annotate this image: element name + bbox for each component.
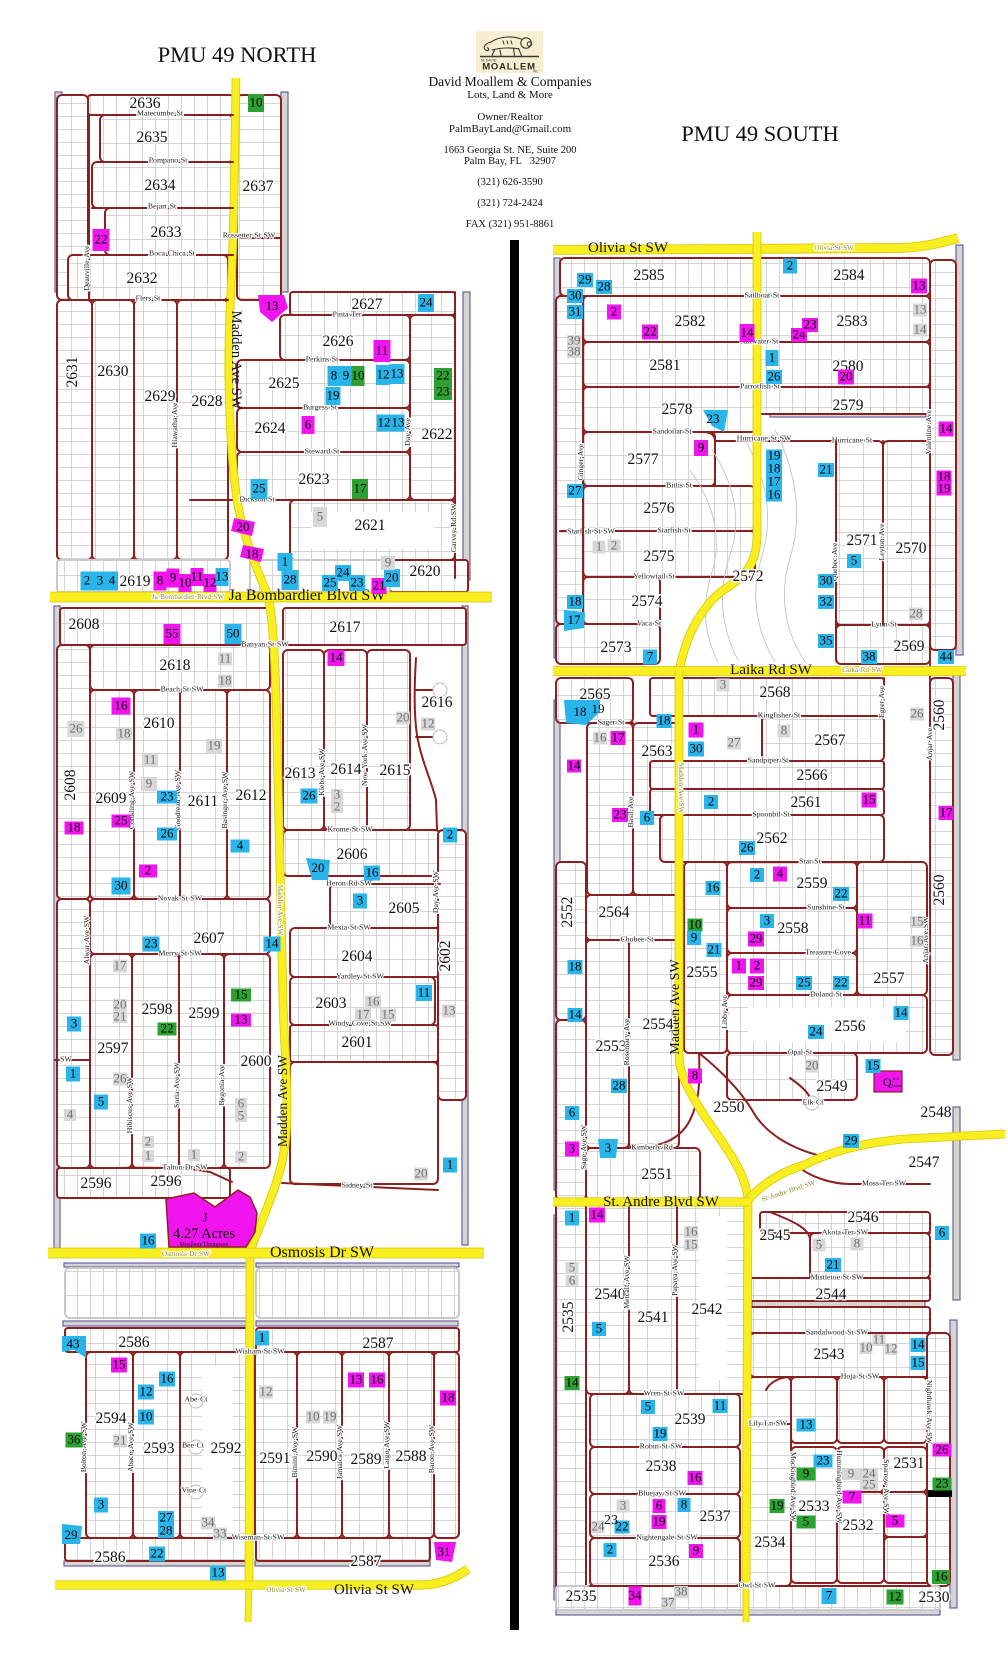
svg-text:26: 26 — [768, 369, 782, 384]
svg-text:5: 5 — [238, 1108, 245, 1123]
svg-text:11: 11 — [144, 752, 157, 767]
svg-text:2537: 2537 — [700, 1508, 731, 1525]
svg-text:29: 29 — [579, 272, 592, 287]
svg-text:Pompano·St: Pompano·St — [149, 156, 188, 165]
svg-text:25: 25 — [798, 975, 811, 990]
svg-text:2531: 2531 — [894, 1455, 925, 1472]
svg-text:2: 2 — [145, 863, 152, 878]
svg-text:4.27 Acres: 4.27 Acres — [173, 1226, 235, 1242]
svg-text:9: 9 — [170, 570, 177, 585]
svg-text:Lynn·St: Lynn·St — [871, 620, 897, 629]
svg-text:Klebs·Ave·SW: Klebs·Ave·SW — [317, 748, 326, 796]
svg-text:2538: 2538 — [646, 1458, 677, 1475]
svg-text:Palm Bay, FL 32907: Palm Bay, FL 32907 — [464, 156, 556, 167]
svg-text:3: 3 — [605, 1140, 612, 1155]
svg-text:11: 11 — [714, 1398, 727, 1413]
svg-text:PMU 49 NORTH: PMU 49 NORTH — [158, 42, 317, 67]
svg-text:Jamaica·Ave·SW: Jamaica·Ave·SW — [335, 1424, 344, 1479]
svg-text:13: 13 — [391, 366, 404, 381]
svg-text:Valentine·Ave: Valentine·Ave — [924, 409, 933, 454]
svg-text:9: 9 — [693, 1543, 700, 1558]
svg-text:Novak·St·SW: Novak·St·SW — [158, 894, 203, 903]
svg-text:27: 27 — [569, 483, 583, 498]
svg-text:8: 8 — [331, 368, 338, 383]
svg-text:10: 10 — [307, 1409, 320, 1424]
svg-text:2559: 2559 — [797, 875, 828, 892]
svg-text:Moss·Ter·SW: Moss·Ter·SW — [862, 1179, 907, 1188]
svg-text:2626: 2626 — [323, 333, 354, 350]
svg-text:1: 1 — [145, 1148, 152, 1163]
svg-text:20: 20 — [386, 570, 399, 585]
svg-text:15: 15 — [867, 1058, 880, 1073]
svg-text:Anjar·Ave: Anjar·Ave — [925, 727, 934, 760]
svg-text:2625: 2625 — [269, 375, 300, 392]
svg-text:10: 10 — [860, 1340, 873, 1355]
svg-text:44: 44 — [940, 649, 954, 664]
svg-text:Wiseman·St·SW: Wiseman·St·SW — [232, 1533, 285, 1542]
svg-text:14: 14 — [895, 1005, 909, 1020]
svg-text:2575: 2575 — [644, 548, 675, 565]
svg-text:13: 13 — [800, 1417, 813, 1432]
svg-text:Sparrow·Ave·SW: Sparrow·Ave·SW — [882, 1459, 891, 1515]
svg-text:Mexia·St·SW: Mexia·St·SW — [327, 923, 371, 932]
svg-text:3: 3 — [357, 893, 364, 908]
svg-text:8: 8 — [692, 1068, 699, 1083]
svg-text:14: 14 — [566, 1375, 580, 1390]
svg-text:Bitlis·St: Bitlis·St — [666, 481, 693, 490]
svg-text:2631: 2631 — [64, 357, 81, 388]
svg-text:Madden·Ave·SW: Madden·Ave·SW — [677, 763, 685, 814]
svg-text:27: 27 — [728, 735, 742, 750]
svg-text:20: 20 — [397, 710, 410, 725]
svg-text:18: 18 — [442, 1390, 455, 1405]
svg-text:6: 6 — [569, 1273, 576, 1288]
svg-text:23: 23 — [936, 1476, 949, 1491]
svg-text:13: 13 — [235, 1012, 248, 1027]
svg-text:23: 23 — [351, 575, 364, 590]
svg-text:23: 23 — [437, 384, 450, 399]
svg-text:Hummingbird·Ave·SW: Hummingbird·Ave·SW — [835, 1450, 844, 1524]
svg-text:Flers·St: Flers·St — [136, 294, 162, 303]
svg-text:2590: 2590 — [307, 1448, 338, 1465]
svg-text:2608: 2608 — [69, 616, 100, 633]
svg-text:Sager·St: Sager·St — [598, 718, 626, 727]
svg-text:Laika·Rd·SW: Laika·Rd·SW — [842, 666, 883, 674]
svg-text:23: 23 — [817, 1453, 830, 1468]
svg-text:Matecumbe·St: Matecumbe·St — [137, 109, 184, 118]
svg-text:14: 14 — [330, 650, 344, 665]
svg-text:30: 30 — [690, 741, 703, 756]
svg-text:2: 2 — [334, 799, 341, 814]
svg-text:2589: 2589 — [351, 1451, 382, 1468]
svg-text:25: 25 — [863, 1477, 876, 1492]
svg-text:24: 24 — [420, 295, 434, 310]
svg-text:2624: 2624 — [255, 420, 286, 437]
svg-text:New·York·Ave·SW: New·York·Ave·SW — [360, 723, 369, 786]
svg-text:2582: 2582 — [675, 313, 706, 330]
svg-text:12: 12 — [422, 716, 435, 731]
svg-text:9: 9 — [698, 440, 705, 455]
svg-text:28: 28 — [598, 279, 611, 294]
svg-text:11: 11 — [859, 913, 872, 928]
svg-text:1: 1 — [447, 1157, 454, 1172]
svg-text:Rossetter·St·SW: Rossetter·St·SW — [223, 231, 276, 240]
svg-text:Starfish·St·SW: Starfish·St·SW — [567, 527, 615, 536]
svg-text:2542: 2542 — [692, 1301, 723, 1318]
svg-text:2581: 2581 — [650, 357, 681, 374]
svg-text:24: 24 — [810, 1024, 824, 1039]
svg-text:2577: 2577 — [628, 451, 659, 468]
svg-text:13: 13 — [443, 1003, 456, 1018]
svg-text:11: 11 — [418, 985, 431, 1000]
svg-text:2554: 2554 — [643, 1016, 674, 1033]
svg-text:Nightengale·St·SW: Nightengale·St·SW — [636, 1533, 698, 1542]
svg-text:23: 23 — [161, 789, 174, 804]
svg-text:38: 38 — [863, 649, 876, 664]
svg-text:23: 23 — [614, 807, 627, 822]
svg-text:2629: 2629 — [145, 388, 176, 405]
svg-text:15: 15 — [912, 1355, 925, 1370]
svg-text:Ja·Bombardier·Blvd·SW: Ja·Bombardier·Blvd·SW — [152, 593, 224, 601]
svg-text:19: 19 — [653, 1514, 666, 1529]
svg-text:Akota·Ter·SW: Akota·Ter·SW — [822, 1228, 869, 1237]
svg-text:SW: SW — [60, 1055, 72, 1064]
svg-text:Hoja·St·SW: Hoja·St·SW — [841, 1372, 880, 1381]
svg-text:9: 9 — [691, 930, 698, 945]
svg-text:9: 9 — [343, 368, 350, 383]
svg-text:1: 1 — [736, 958, 743, 973]
svg-text:2588: 2588 — [396, 1448, 427, 1465]
svg-text:10: 10 — [352, 368, 365, 383]
svg-text:22: 22 — [95, 232, 108, 247]
svg-text:30: 30 — [115, 878, 128, 893]
svg-text:5: 5 — [645, 1399, 652, 1414]
svg-text:16: 16 — [115, 698, 129, 713]
svg-text:15: 15 — [382, 1007, 395, 1022]
svg-text:2609: 2609 — [96, 790, 127, 807]
svg-text:David Moallem & Companies: David Moallem & Companies — [428, 74, 591, 89]
svg-text:(321) 724-2424: (321) 724-2424 — [477, 198, 543, 209]
svg-text:2600: 2600 — [241, 1053, 272, 1070]
svg-text:5: 5 — [98, 1094, 105, 1109]
svg-text:Sunshine·St: Sunshine·St — [807, 903, 846, 912]
svg-text:2635: 2635 — [137, 129, 168, 146]
svg-text:16: 16 — [935, 1569, 949, 1584]
svg-text:2539: 2539 — [675, 1411, 706, 1428]
svg-text:11: 11 — [873, 1332, 886, 1347]
svg-text:Basinger·Ave·SW: Basinger·Ave·SW — [220, 771, 229, 829]
svg-text:13: 13 — [216, 569, 229, 584]
svg-text:2585: 2585 — [634, 267, 665, 284]
svg-text:2611: 2611 — [188, 793, 218, 810]
svg-text:21: 21 — [820, 462, 833, 477]
svg-text:2591: 2591 — [260, 1450, 291, 1467]
svg-text:Spoonbil·St: Spoonbil·St — [752, 810, 790, 819]
svg-text:Deauville·Ave: Deauville·Ave — [82, 245, 91, 291]
svg-text:2608: 2608 — [62, 769, 79, 800]
svg-text:19: 19 — [938, 481, 951, 496]
svg-text:38: 38 — [568, 344, 581, 359]
svg-text:31: 31 — [569, 304, 582, 319]
svg-text:29: 29 — [750, 975, 763, 990]
svg-text:5: 5 — [851, 553, 858, 568]
svg-text:26: 26 — [303, 788, 317, 803]
svg-text:2532: 2532 — [843, 1517, 874, 1534]
svg-text:36: 36 — [68, 1432, 82, 1447]
svg-text:PalmBayLand@Gmail.com: PalmBayLand@Gmail.com — [449, 123, 572, 135]
svg-text:2586: 2586 — [95, 1549, 126, 1566]
svg-text:16: 16 — [371, 1372, 385, 1387]
svg-text:21: 21 — [708, 942, 721, 957]
svg-text:2637: 2637 — [243, 178, 274, 195]
svg-text:28: 28 — [613, 1078, 626, 1093]
svg-text:INC: INC — [533, 70, 539, 74]
svg-text:13: 13 — [212, 1565, 225, 1580]
svg-text:2534: 2534 — [755, 1534, 786, 1551]
svg-text:Banyan·St·SW: Banyan·St·SW — [241, 640, 289, 649]
svg-text:38: 38 — [675, 1584, 688, 1599]
svg-text:2586: 2586 — [119, 1334, 150, 1351]
svg-text:St. Andre Blvd SW: St. Andre Blvd SW — [603, 1194, 720, 1210]
svg-text:Osmosis Dr SW: Osmosis Dr SW — [270, 1244, 375, 1261]
svg-text:4: 4 — [109, 573, 116, 588]
svg-text:Alwar·Ave·SW: Alwar·Ave·SW — [82, 915, 91, 964]
svg-text:2561: 2561 — [791, 794, 822, 811]
svg-text:7: 7 — [647, 649, 654, 664]
svg-text:2596: 2596 — [81, 1175, 112, 1192]
svg-text:2568: 2568 — [760, 684, 791, 701]
svg-text:2599: 2599 — [189, 1005, 220, 1022]
svg-text:PMU 49 SOUTH: PMU 49 SOUTH — [681, 121, 839, 146]
svg-text:16: 16 — [142, 1233, 156, 1248]
svg-text:Olivia·St·SW: Olivia·St·SW — [266, 1586, 306, 1594]
svg-text:2592: 2592 — [211, 1440, 242, 1457]
svg-text:Starfish·St: Starfish·St — [657, 526, 691, 535]
svg-text:12: 12 — [260, 1384, 273, 1399]
svg-text:20: 20 — [806, 1058, 819, 1073]
svg-text:19: 19 — [654, 1426, 667, 1441]
svg-text:Lots, Land & More: Lots, Land & More — [467, 89, 553, 101]
svg-text:2563: 2563 — [642, 743, 673, 760]
svg-text:21: 21 — [373, 578, 386, 593]
svg-text:1663 Georgia St. NE, Suite 200: 1663 Georgia St. NE, Suite 200 — [443, 145, 576, 156]
svg-text:2576: 2576 — [644, 500, 675, 517]
svg-text:Rosemary·Ave: Rosemary·Ave — [622, 1018, 631, 1065]
svg-text:17: 17 — [940, 805, 954, 820]
svg-text:4.3: 4.3 — [893, 1076, 899, 1081]
svg-text:4: 4 — [777, 866, 784, 881]
svg-text:2541: 2541 — [638, 1309, 669, 1326]
svg-text:26: 26 — [741, 840, 755, 855]
svg-text:25: 25 — [324, 575, 337, 590]
svg-text:Nighthawk·Ave·SW: Nighthawk·Ave·SW — [925, 1380, 934, 1445]
svg-text:17: 17 — [357, 1007, 371, 1022]
svg-text:16: 16 — [911, 933, 925, 948]
svg-text:Yellowtail·St: Yellowtail·St — [633, 572, 675, 581]
svg-text:8: 8 — [781, 723, 788, 738]
svg-text:3: 3 — [71, 1016, 78, 1031]
svg-text:1: 1 — [282, 554, 289, 569]
svg-text:19: 19 — [324, 1409, 337, 1424]
svg-text:2530: 2530 — [919, 1589, 950, 1606]
svg-text:2560: 2560 — [931, 874, 948, 905]
svg-text:22: 22 — [437, 368, 450, 383]
svg-text:Wisham·St·SW: Wisham·St·SW — [235, 1347, 285, 1356]
svg-text:14: 14 — [912, 1337, 926, 1352]
svg-text:Garvey·Rd·SW: Garvey·Rd·SW — [449, 503, 458, 553]
svg-text:26: 26 — [70, 721, 84, 736]
svg-text:2536: 2536 — [649, 1553, 680, 1570]
svg-text:2564: 2564 — [599, 904, 630, 921]
svg-text:Doland·St: Doland·St — [810, 990, 843, 999]
svg-text:Ginger·Ave: Ginger·Ave — [576, 443, 585, 480]
svg-text:3: 3 — [620, 1498, 627, 1513]
svg-text:2535: 2535 — [560, 1301, 577, 1332]
svg-text:Madden Ave SW: Madden Ave SW — [668, 959, 683, 1055]
svg-text:2533: 2533 — [799, 1498, 830, 1515]
svg-text:2607: 2607 — [194, 930, 225, 947]
svg-text:26: 26 — [911, 706, 925, 721]
svg-text:Sailboat·St: Sailboat·St — [745, 291, 780, 300]
svg-text:1: 1 — [569, 1210, 576, 1225]
svg-text:18: 18 — [574, 704, 587, 719]
svg-text:14: 14 — [940, 421, 954, 436]
svg-text:2555: 2555 — [687, 964, 718, 981]
svg-text:Begonia·Ave: Begonia·Ave — [217, 1064, 226, 1106]
svg-text:MOALLEM: MOALLEM — [482, 62, 536, 73]
svg-text:18: 18 — [219, 673, 232, 688]
svg-text:2: 2 — [708, 794, 715, 809]
svg-text:Sandpiper·St: Sandpiper·St — [748, 756, 790, 765]
svg-text:2543: 2543 — [814, 1346, 845, 1363]
svg-text:25: 25 — [253, 481, 266, 496]
svg-text:Hurricane·St·SW: Hurricane·St·SW — [737, 434, 792, 443]
svg-text:3: 3 — [764, 913, 771, 928]
svg-text:34: 34 — [629, 1588, 643, 1603]
svg-text:2: 2 — [238, 1149, 245, 1164]
svg-text:19: 19 — [208, 738, 221, 753]
svg-text:2549: 2549 — [817, 1078, 848, 1095]
svg-text:22: 22 — [161, 1021, 174, 1036]
svg-text:10: 10 — [140, 1409, 153, 1424]
svg-text:2567: 2567 — [815, 732, 846, 749]
svg-text:13: 13 — [266, 298, 279, 313]
svg-text:21: 21 — [827, 1257, 840, 1272]
svg-text:11: 11 — [191, 569, 204, 584]
svg-text:16: 16 — [594, 730, 608, 745]
svg-text:2551: 2551 — [642, 1166, 673, 1183]
svg-text:17: 17 — [612, 730, 626, 745]
svg-text:32: 32 — [820, 594, 833, 609]
svg-text:2566: 2566 — [797, 767, 828, 784]
svg-text:Madden Ave SW: Madden Ave SW — [275, 1055, 290, 1147]
svg-text:Robin·St·SW: Robin·St·SW — [640, 1442, 683, 1451]
svg-text:Talton·Dr·SW: Talton·Dr·SW — [163, 1163, 209, 1172]
svg-text:FAX (321) 951-8861: FAX (321) 951-8861 — [466, 219, 554, 230]
svg-text:Leyton·Ave: Leyton·Ave — [877, 523, 886, 561]
svg-text:2570: 2570 — [896, 540, 927, 557]
svg-text:20: 20 — [415, 1166, 428, 1181]
svg-text:Abe·Ct: Abe·Ct — [185, 1395, 209, 1404]
svg-text:Opal·St: Opal·St — [788, 1048, 813, 1057]
svg-text:19: 19 — [771, 1498, 784, 1513]
svg-text:2593: 2593 — [144, 1440, 175, 1457]
svg-text:Baron·Ave·SW: Baron·Ave·SW — [427, 1424, 436, 1473]
svg-text:2544: 2544 — [816, 1286, 847, 1303]
svg-text:14: 14 — [914, 322, 928, 337]
svg-text:3: 3 — [98, 1497, 105, 1512]
svg-text:18: 18 — [246, 546, 259, 561]
svg-text:12: 12 — [885, 1341, 898, 1356]
svg-text:18: 18 — [118, 726, 131, 741]
svg-text:2562: 2562 — [757, 830, 788, 847]
svg-text:Owner/Realtor: Owner/Realtor — [477, 111, 543, 123]
svg-text:14: 14 — [741, 325, 755, 340]
svg-text:Bimini·Ave·SW: Bimini·Ave·SW — [290, 1426, 299, 1478]
svg-text:10: 10 — [179, 575, 192, 590]
svg-text:20: 20 — [312, 860, 325, 875]
svg-text:23: 23 — [604, 1513, 618, 1528]
svg-text:2584: 2584 — [834, 267, 865, 284]
svg-text:1: 1 — [70, 1066, 77, 1081]
svg-text:25: 25 — [115, 813, 128, 828]
svg-text:17: 17 — [114, 958, 128, 973]
svg-text:Metcalf·Ave·SW: Metcalf·Ave·SW — [622, 1255, 631, 1309]
svg-text:2573: 2573 — [601, 639, 632, 656]
svg-text:2560: 2560 — [931, 699, 948, 730]
svg-text:Laika Rd SW: Laika Rd SW — [730, 662, 812, 678]
svg-text:2550: 2550 — [714, 1099, 745, 1116]
svg-text:28: 28 — [910, 606, 923, 621]
svg-text:Sage·Ave·SW: Sage·Ave·SW — [579, 1124, 588, 1169]
svg-text:Chobee·St: Chobee·St — [621, 935, 655, 944]
svg-text:28: 28 — [284, 572, 297, 587]
svg-text:5: 5 — [892, 1513, 899, 1528]
svg-text:28: 28 — [160, 1523, 173, 1538]
svg-text:21: 21 — [114, 1433, 127, 1448]
svg-text:13: 13 — [392, 415, 405, 430]
svg-text:2622: 2622 — [422, 426, 453, 443]
svg-text:Moallem/Thompson: Moallem/Thompson — [180, 1242, 229, 1248]
svg-text:2587: 2587 — [351, 1553, 382, 1570]
svg-text:2612: 2612 — [236, 787, 267, 804]
svg-text:2628: 2628 — [192, 393, 223, 410]
svg-text:Yardley·St·SW: Yardley·St·SW — [336, 972, 384, 981]
svg-text:15: 15 — [863, 792, 876, 807]
svg-text:35: 35 — [820, 633, 833, 648]
svg-text:Papaya·Ave·SW: Papaya·Ave·SW — [670, 1243, 679, 1295]
svg-text:16: 16 — [689, 1470, 703, 1485]
svg-text:26: 26 — [936, 1442, 950, 1457]
svg-text:1: 1 — [769, 350, 776, 365]
svg-text:Osmosis·Dr·SW: Osmosis·Dr·SW — [162, 1250, 210, 1258]
svg-text:Egret·Ave: Egret·Ave — [877, 686, 886, 718]
svg-text:2: 2 — [84, 573, 91, 588]
svg-text:29: 29 — [845, 1133, 858, 1148]
svg-text:Acres: Acres — [891, 1083, 902, 1088]
svg-text:12: 12 — [378, 415, 391, 430]
svg-text:1: 1 — [191, 1147, 198, 1162]
svg-text:22: 22 — [151, 1546, 164, 1561]
svg-text:Soria·Ave·SW: Soria·Ave·SW — [172, 1061, 181, 1107]
svg-text:21: 21 — [114, 1009, 127, 1024]
svg-text:30: 30 — [569, 288, 582, 303]
svg-text:24: 24 — [337, 565, 351, 580]
svg-text:2618: 2618 — [160, 657, 191, 674]
svg-text:37: 37 — [662, 1595, 676, 1610]
svg-text:2587: 2587 — [363, 1335, 394, 1352]
svg-text:13: 13 — [914, 302, 927, 317]
